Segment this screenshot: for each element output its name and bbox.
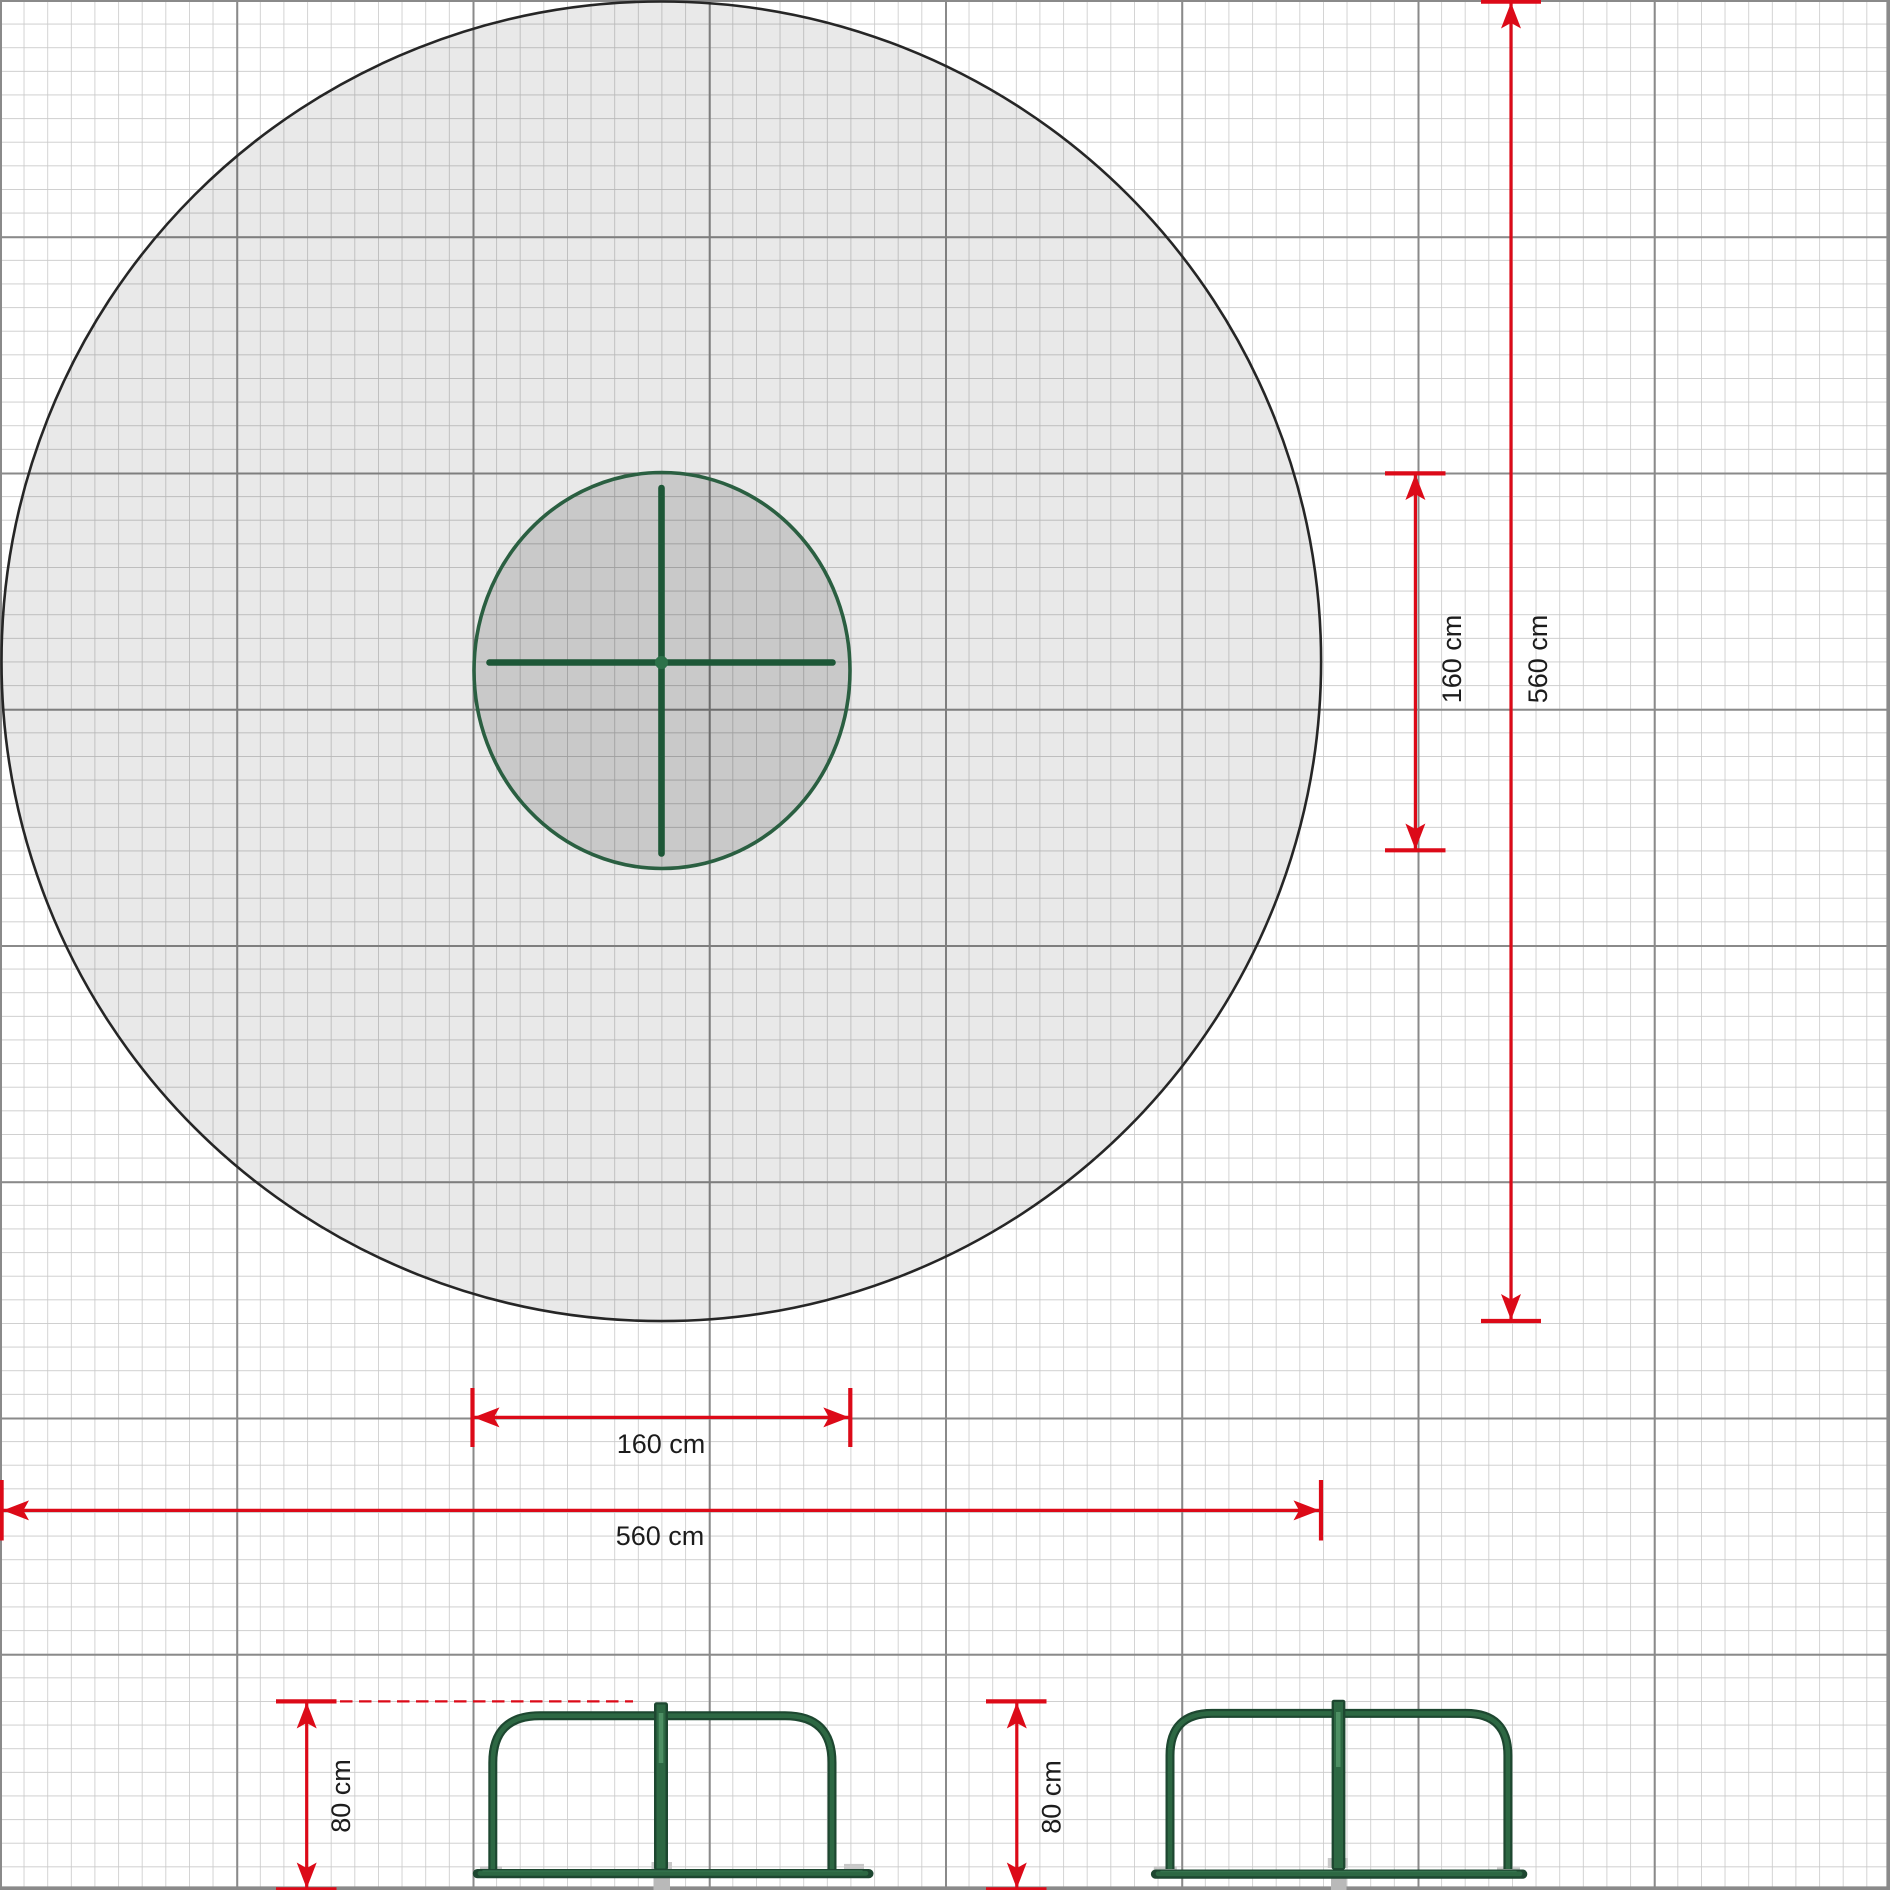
svg-text:160 cm: 160 cm — [617, 1429, 706, 1459]
svg-text:160 cm: 160 cm — [1437, 615, 1467, 704]
svg-text:560 cm: 560 cm — [616, 1521, 705, 1551]
svg-text:80 cm: 80 cm — [1037, 1760, 1067, 1834]
svg-text:80 cm: 80 cm — [326, 1759, 356, 1833]
svg-text:560 cm: 560 cm — [1523, 615, 1553, 704]
